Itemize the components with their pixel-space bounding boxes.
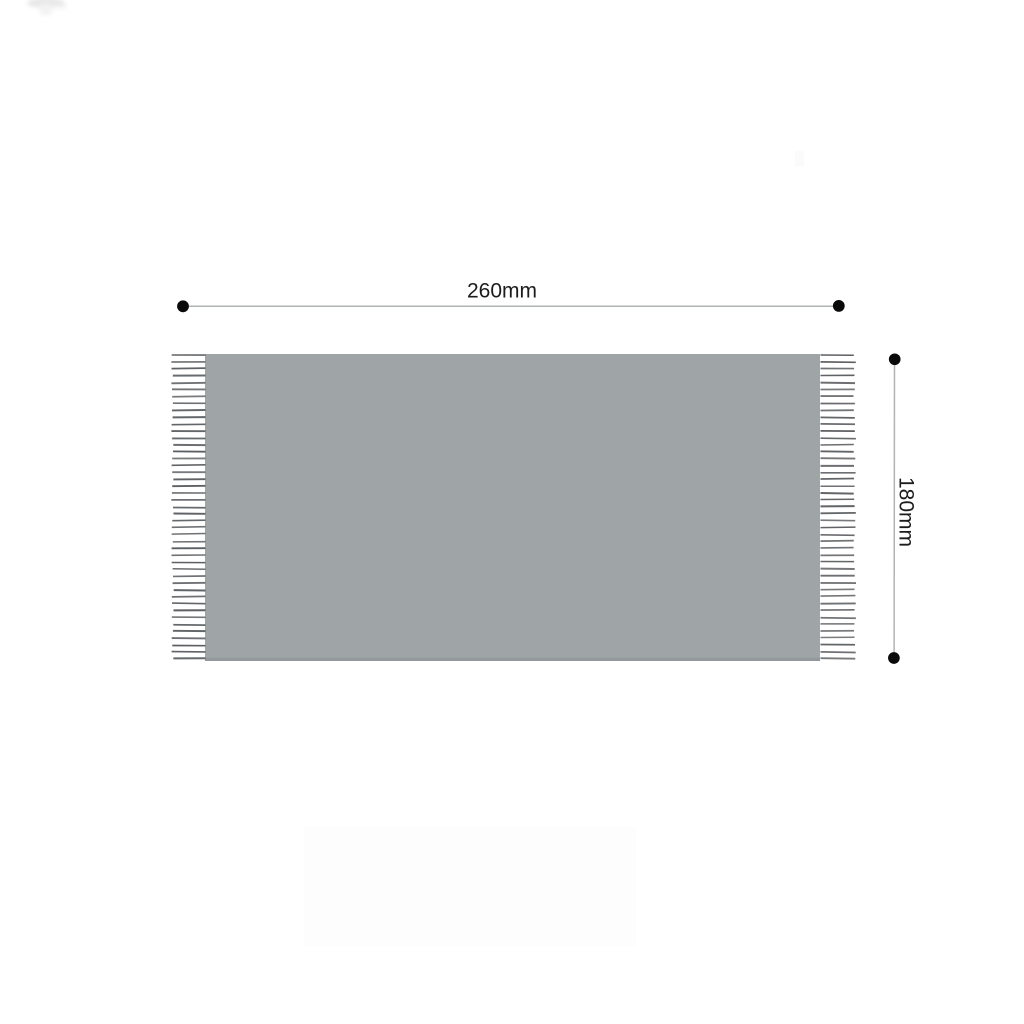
svg-text:180mm: 180mm: [894, 477, 917, 547]
svg-text:260mm: 260mm: [467, 280, 537, 303]
